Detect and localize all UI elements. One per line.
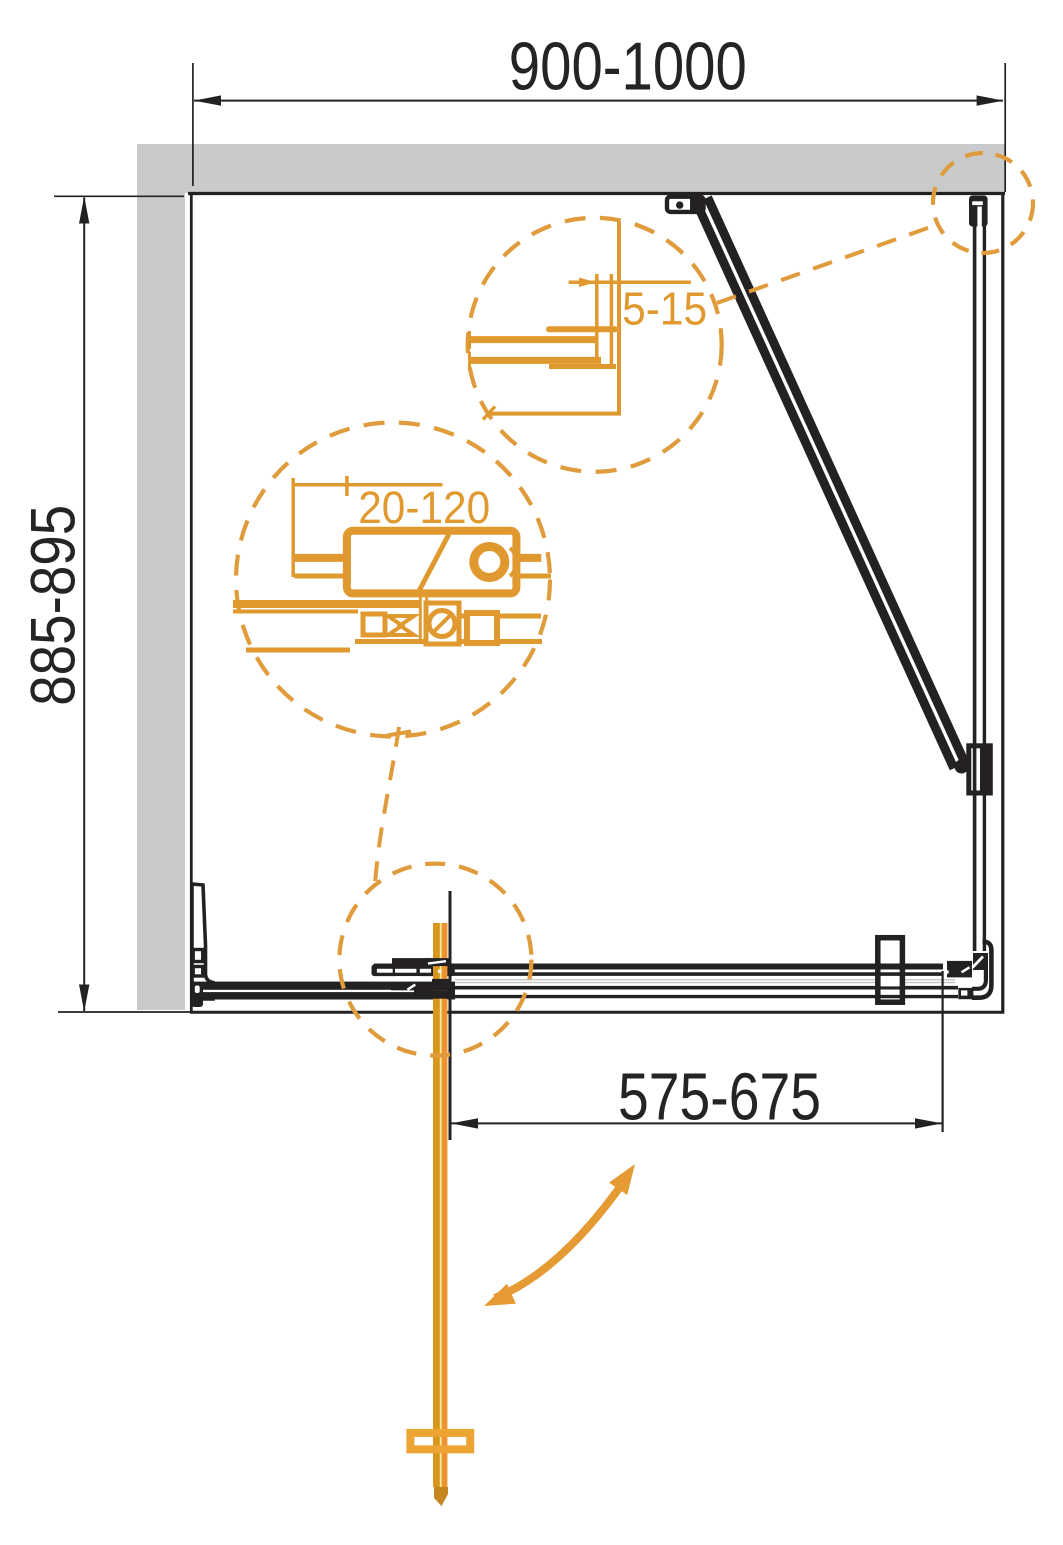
svg-text:20-120: 20-120 <box>358 482 490 533</box>
svg-text:885-895: 885-895 <box>19 505 89 706</box>
svg-text:900-1000: 900-1000 <box>509 29 747 104</box>
svg-text:575-675: 575-675 <box>618 1059 821 1134</box>
svg-text:5-15: 5-15 <box>622 282 707 334</box>
